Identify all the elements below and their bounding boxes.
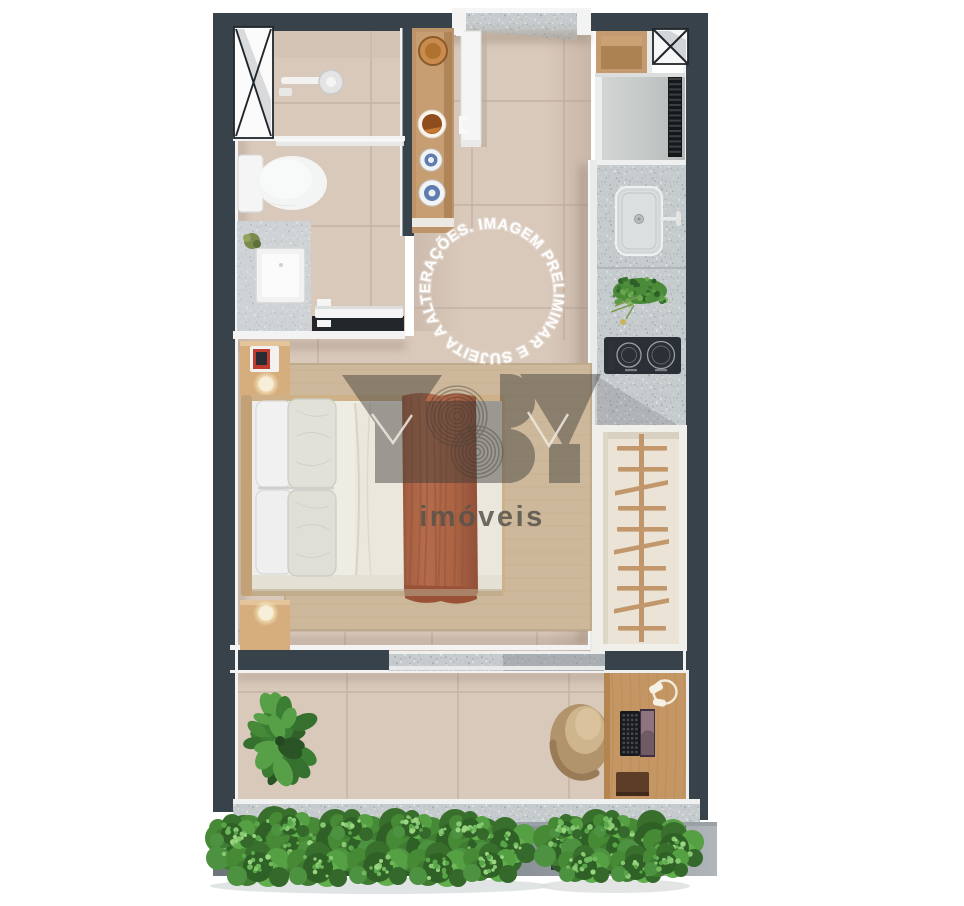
svg-text:imóveis: imóveis: [419, 501, 545, 533]
